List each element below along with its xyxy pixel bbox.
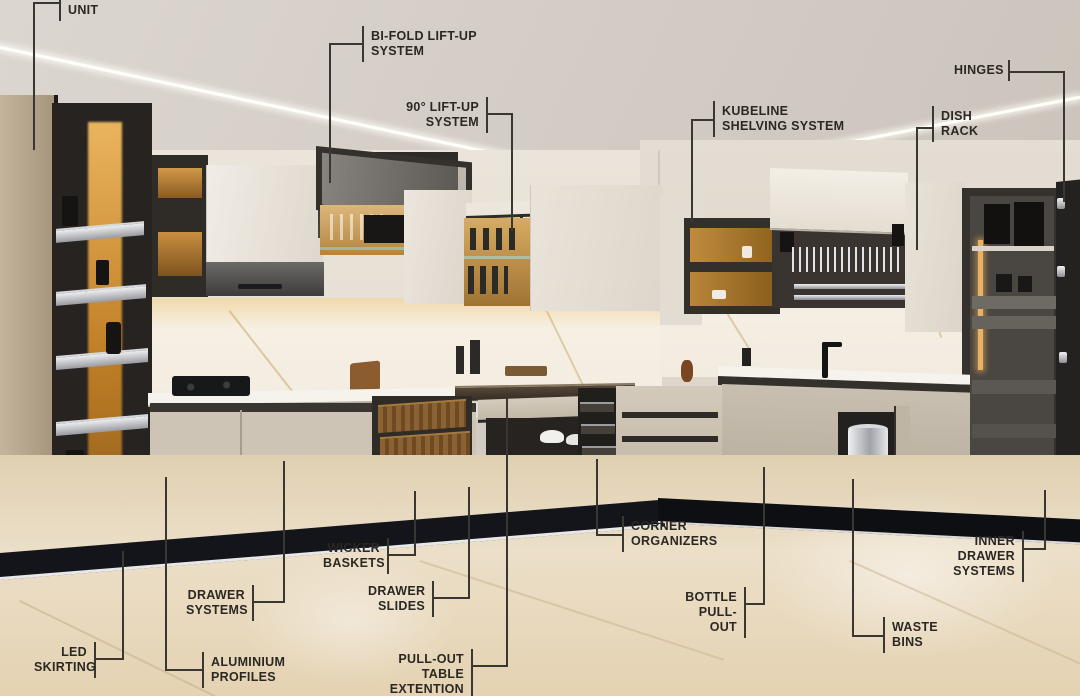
black-decor-box [996, 274, 1012, 292]
corner-organizer-tray [581, 424, 615, 434]
callout-wicker-baskets: WICKER BASKETS [323, 538, 389, 574]
label-unit: UNIT [59, 0, 98, 21]
callout-inner-drawer-systems: INNER DRAWER SYSTEMS [920, 531, 1024, 582]
inner-drawer-front [972, 424, 1056, 438]
leader-hinges-h [1010, 71, 1065, 73]
leader-bottle-pull-out [763, 467, 765, 605]
label-inner-drawer-systems: INNER DRAWER SYSTEMS [920, 531, 1024, 582]
wall-cabinet-corner [530, 185, 663, 311]
leader-inner-drawer-h [1024, 548, 1046, 550]
leader-kubeline [691, 119, 693, 222]
label-90-lift-up-system: 90° LIFT-UP SYSTEM [406, 97, 488, 133]
leader-ninety-h [488, 113, 513, 115]
label-corner-organizers: CORNER ORGANIZERS [622, 516, 717, 552]
callout-bottle-pull-out: BOTTLE PULL-OUT [678, 587, 746, 638]
dish-rack-wires [792, 247, 904, 272]
callout-unit: UNIT [59, 0, 98, 21]
leader-dish-rack [916, 127, 918, 250]
callout-kubeline-shelving-system: KUBELINE SHELVING SYSTEM [713, 101, 844, 137]
leader-drawer-systems [283, 461, 285, 603]
callout-aluminium-profiles: ALUMINIUM PROFILES [202, 652, 285, 688]
leader-bi-fold-h [329, 43, 362, 45]
label-led-skirting: LED SKIRTING [34, 642, 96, 678]
wooden-tray [505, 366, 547, 376]
pantry-bottle [106, 322, 121, 354]
wall-cabinet-white [206, 165, 323, 265]
callout-corner-organizers: CORNER ORGANIZERS [622, 516, 717, 552]
label-bi-fold-lift-up-system: BI-FOLD LIFT-UP SYSTEM [362, 26, 477, 62]
kubeline-shelf-glow [690, 228, 774, 262]
label-drawer-slides: DRAWER SLIDES [368, 581, 434, 617]
cup-decor [742, 246, 752, 258]
dish-rack-lift-up-door [770, 168, 908, 235]
label-kubeline-shelving-system: KUBELINE SHELVING SYSTEM [713, 101, 844, 137]
leader-dish-rack-h [917, 127, 933, 129]
leader-aluminium [165, 477, 167, 671]
inner-drawer-front [972, 296, 1056, 309]
label-pull-out-table-extention: PULL-OUT TABLE EXTENTION [359, 649, 473, 696]
gas-hob [172, 376, 250, 396]
label-aluminium-profiles: ALUMINIUM PROFILES [202, 652, 285, 688]
leader-kubeline-h [692, 119, 713, 121]
bottle-decor [742, 348, 751, 366]
label-wicker-baskets: WICKER BASKETS [323, 538, 389, 574]
leader-pull-out-table-h [473, 665, 508, 667]
leader-ninety [511, 113, 513, 231]
dish-rack-tray [794, 295, 906, 300]
corner-organizer-tray [580, 402, 614, 412]
leader-waste-bins-h [853, 635, 884, 637]
leader-drawer-slides [468, 487, 470, 599]
inner-drawer-front [972, 380, 1056, 394]
leader-unit-h [33, 2, 59, 4]
hinge-hardware [1057, 266, 1065, 277]
label-drawer-systems: DRAWER SYSTEMS [186, 585, 254, 621]
bowl-decor [712, 290, 726, 299]
callout-drawer-slides: DRAWER SLIDES [368, 581, 434, 617]
hood-control-panel [238, 284, 282, 289]
spice-jars [468, 266, 508, 294]
knife-block [470, 340, 480, 374]
leader-led-skirting [122, 551, 124, 660]
leader-led-skirting-h [96, 658, 124, 660]
leader-aluminium-h [166, 669, 202, 671]
leader-bi-fold [329, 43, 331, 183]
faucet [822, 342, 828, 378]
callout-pull-out-table-extention: PULL-OUT TABLE EXTENTION [359, 649, 473, 696]
utensil-holder [456, 346, 464, 374]
callout-dish-rack: DISH RACK [932, 106, 978, 142]
leader-wicker [414, 491, 416, 556]
callout-bi-fold-lift-up-system: BI-FOLD LIFT-UP SYSTEM [362, 26, 477, 62]
vase-decor [681, 360, 693, 382]
callout-led-skirting: LED SKIRTING [34, 642, 96, 678]
black-decor-box [1018, 276, 1032, 292]
leader-drawer-systems-h [254, 601, 285, 603]
callout-hinges: HINGES [954, 60, 1010, 81]
inner-drawer-front [972, 316, 1056, 329]
leader-unit [33, 2, 35, 150]
lift-up-mechanism [892, 224, 904, 246]
spice-jars [470, 228, 522, 250]
inner-drawer-handle [622, 412, 718, 418]
kitchen-photo: UNIT BI-FOLD LIFT-UP SYSTEM 90° LIFT-UP … [0, 0, 1080, 696]
dish-rack-tray [794, 284, 906, 289]
pantry-bottle [62, 196, 78, 226]
leader-drawer-slides-h [434, 597, 470, 599]
leader-corner-organizers-h [597, 534, 622, 536]
faucet-spout [822, 342, 842, 347]
leader-hinges [1063, 71, 1065, 202]
leader-inner-drawer [1044, 490, 1046, 550]
bowl-in-drawer [540, 430, 564, 443]
pantry-bottle [96, 260, 109, 285]
tall-unit-shelf [972, 246, 1054, 251]
leader-wicker-h [389, 554, 416, 556]
built-in-speaker [364, 215, 404, 243]
label-waste-bins: WASTE BINS [883, 617, 938, 653]
leader-corner-organizers [596, 459, 598, 536]
inner-drawer-handle [622, 436, 718, 442]
open-shelf-glow [158, 168, 202, 198]
black-decor-box [984, 204, 1010, 244]
label-dish-rack: DISH RACK [932, 106, 978, 142]
kubeline-shelf-glow [690, 272, 774, 306]
callout-drawer-systems: DRAWER SYSTEMS [186, 585, 254, 621]
cooker-hood [206, 262, 324, 296]
black-decor-box [1014, 202, 1044, 246]
label-hinges: HINGES [954, 60, 1010, 81]
wall-cabinet-white [905, 182, 965, 332]
callout-waste-bins: WASTE BINS [883, 617, 938, 653]
glass-shelf-edge [320, 247, 406, 250]
hinge-hardware [1059, 352, 1067, 363]
leader-pull-out-table [506, 394, 508, 667]
callout-90-lift-up-system: 90° LIFT-UP SYSTEM [406, 97, 488, 133]
leader-waste-bins [852, 479, 854, 637]
label-bottle-pull-out: BOTTLE PULL-OUT [678, 587, 746, 638]
open-shelf-glow [158, 232, 202, 276]
glass-shelf-edge [464, 256, 532, 259]
wall-cabinet-white [404, 190, 472, 304]
